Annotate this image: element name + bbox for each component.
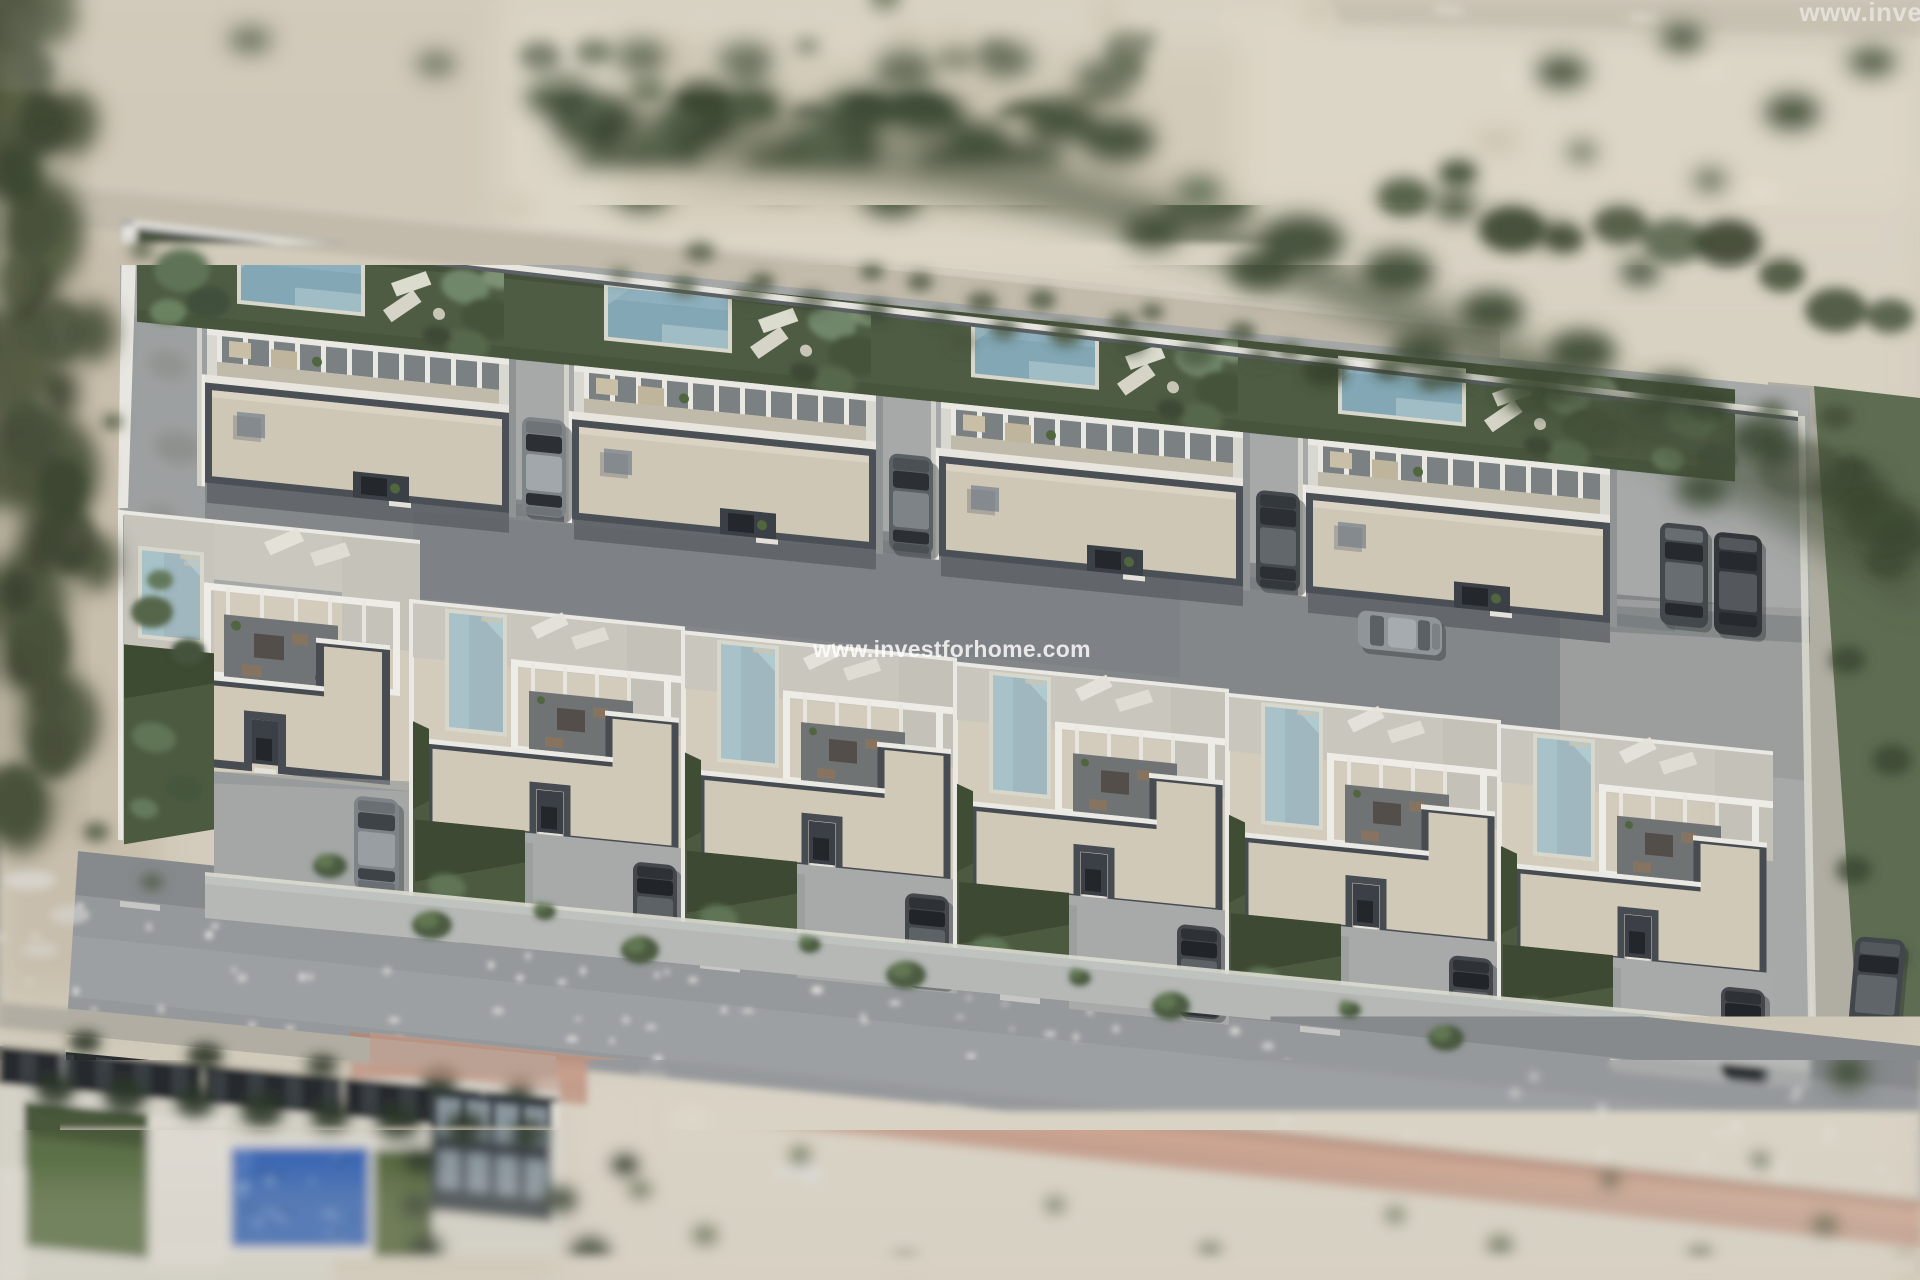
svg-text:www.investforhome.com: www.investforhome.com [1798,0,1920,27]
svg-text:www.investforhome.com: www.investforhome.com [812,636,1091,662]
